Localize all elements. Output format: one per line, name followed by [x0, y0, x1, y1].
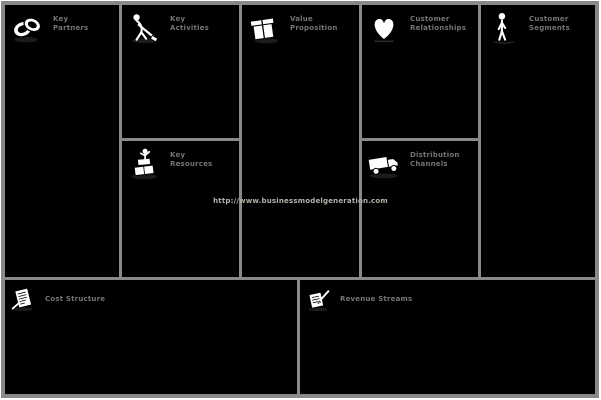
- rings-icon: [10, 11, 44, 45]
- block-label: Key Partners: [53, 15, 88, 33]
- block-label: Cost Structure: [45, 295, 105, 304]
- truck-icon: [367, 147, 401, 181]
- block-label: Value Proposition: [290, 15, 338, 33]
- block-cost-structure: Cost Structure: [5, 280, 297, 394]
- block-label-line1: Key: [170, 15, 209, 24]
- block-value-proposition: Value Proposition: [242, 5, 359, 277]
- block-label-line1: Value: [290, 15, 338, 24]
- writing-hand-icon: [305, 286, 331, 312]
- block-key-resources: Key Resources: [122, 141, 239, 277]
- block-label-line2: Channels: [410, 160, 460, 169]
- block-customer-segments: Customer Segments: [481, 5, 595, 277]
- block-label: Distribution Channels: [410, 151, 460, 169]
- block-label: Revenue Streams: [340, 295, 412, 304]
- gift-icon: [247, 11, 281, 45]
- block-label-line2: Partners: [53, 24, 88, 33]
- block-label-line1: Revenue Streams: [340, 295, 412, 304]
- block-label-line2: Activities: [170, 24, 209, 33]
- block-label-line2: Segments: [529, 24, 570, 33]
- block-header: Key Activities: [127, 11, 234, 45]
- person-icon: [486, 11, 520, 45]
- block-header: Customer Segments: [486, 11, 590, 45]
- block-label: Key Activities: [170, 15, 209, 33]
- digging-person-icon: [127, 11, 161, 45]
- block-label-line1: Cost Structure: [45, 295, 105, 304]
- block-customer-relationships: Customer Relationships: [362, 5, 478, 138]
- block-header: Key Resources: [127, 147, 234, 181]
- block-header: Cost Structure: [10, 286, 292, 312]
- block-label-line1: Key: [53, 15, 88, 24]
- block-header: Customer Relationships: [367, 11, 473, 45]
- block-header: Key Partners: [10, 11, 114, 45]
- block-key-activities: Key Activities: [122, 5, 239, 138]
- block-label-line2: Resources: [170, 160, 212, 169]
- block-header: Value Proposition: [247, 11, 354, 45]
- block-label: Customer Segments: [529, 15, 570, 33]
- block-header: Revenue Streams: [305, 286, 590, 312]
- notepad-icon: [10, 286, 36, 312]
- watermark-url: http://www.businessmodelgeneration.com: [0, 197, 601, 205]
- block-header: Distribution Channels: [367, 147, 473, 181]
- block-label: Key Resources: [170, 151, 212, 169]
- block-label-line2: Proposition: [290, 24, 338, 33]
- block-label-line1: Customer: [410, 15, 466, 24]
- block-key-partners: Key Partners: [5, 5, 119, 277]
- block-label-line2: Relationships: [410, 24, 466, 33]
- block-revenue-streams: Revenue Streams: [300, 280, 595, 394]
- block-label-line1: Customer: [529, 15, 570, 24]
- block-label: Customer Relationships: [410, 15, 466, 33]
- heart-icon: [367, 11, 401, 45]
- block-channels: Distribution Channels: [362, 141, 478, 277]
- block-label-line1: Distribution: [410, 151, 460, 160]
- block-label-line1: Key: [170, 151, 212, 160]
- blocks-figure-icon: [127, 147, 161, 181]
